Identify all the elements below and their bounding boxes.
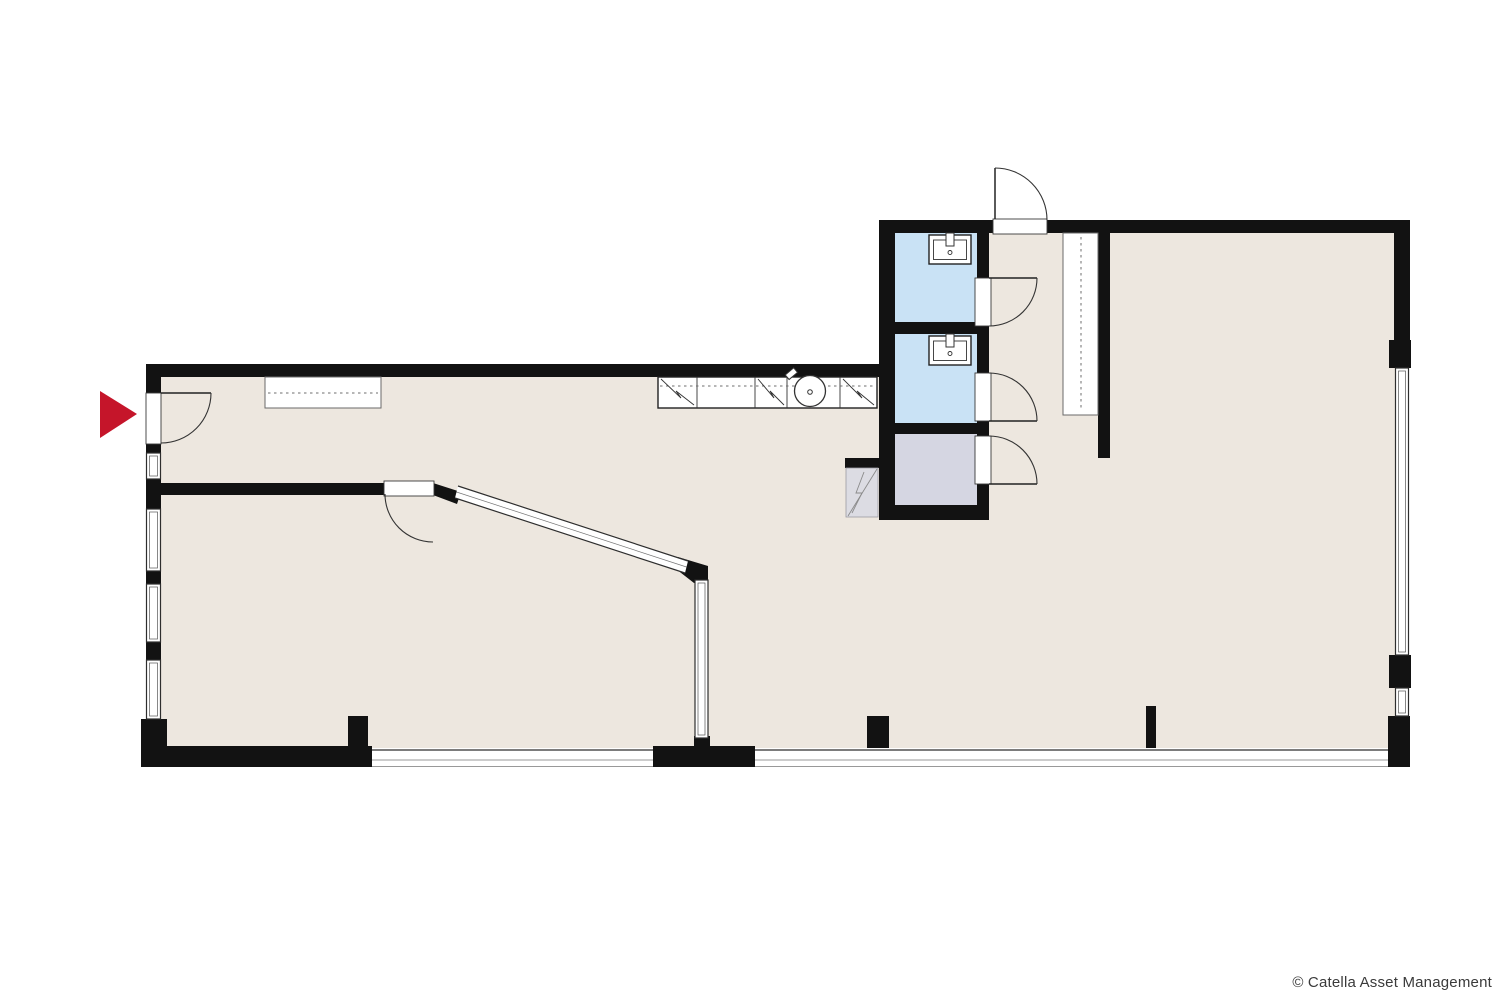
floor-plan-canvas — [0, 0, 1500, 1000]
window-band — [372, 748, 653, 767]
window — [147, 509, 161, 571]
pillar — [867, 716, 889, 750]
window — [1396, 368, 1409, 655]
electrical-cabinet — [846, 468, 878, 517]
floor-plan-drawing — [0, 0, 1500, 1000]
wall-stub — [1146, 706, 1156, 750]
storage-room — [895, 434, 977, 505]
copyright-text: © Catella Asset Management — [1292, 974, 1492, 991]
window — [147, 660, 161, 719]
wc-sink-2 — [929, 334, 971, 365]
window — [1396, 688, 1409, 716]
floor-plan-page: { "footer": { "copyright": "© Catella As… — [0, 0, 1500, 1000]
wardrobe-corridor — [1063, 233, 1098, 415]
tap-icon — [946, 334, 954, 347]
window-band — [755, 748, 1388, 767]
corridor-entry-door — [993, 168, 1047, 234]
window — [147, 453, 161, 479]
window — [147, 584, 161, 642]
wc-sink-1 — [929, 233, 971, 264]
tap-icon — [946, 233, 954, 246]
wardrobe-top-left — [265, 377, 381, 408]
pillar — [348, 716, 368, 750]
entrance-arrow-icon — [100, 391, 137, 438]
